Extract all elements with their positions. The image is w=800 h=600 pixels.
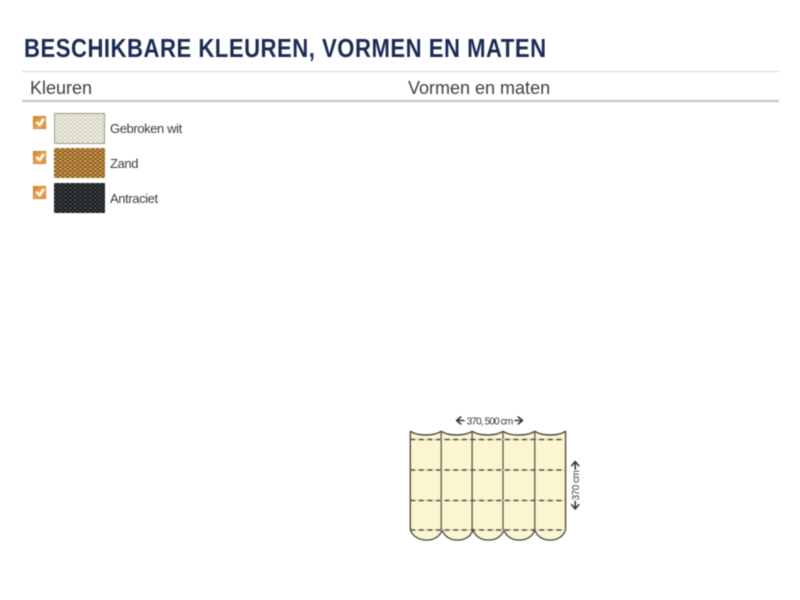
svg-text:370 cm: 370 cm (571, 470, 582, 500)
svg-text:370, 500 cm: 370, 500 cm (467, 416, 513, 427)
